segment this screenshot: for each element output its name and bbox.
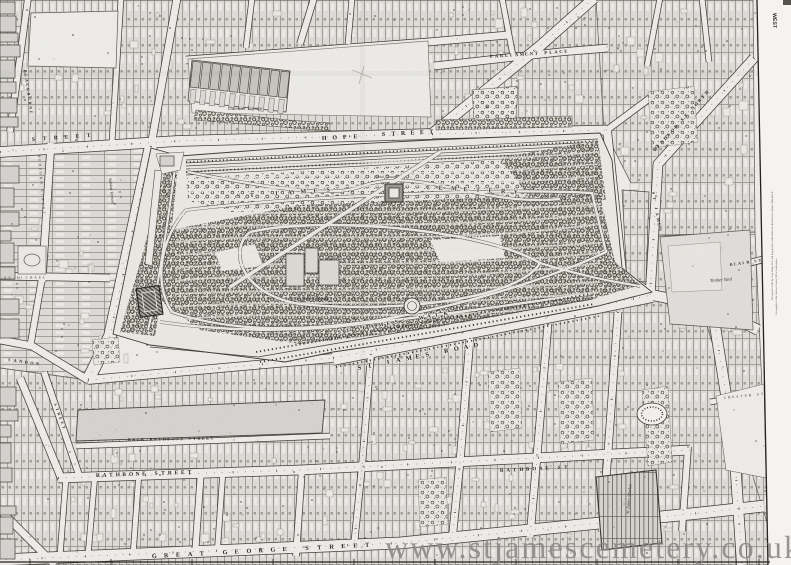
svg-text:WEST: WEST	[771, 13, 777, 29]
svg-text:Zincographed at the Ordnance S: Zincographed at the Ordnance Survey Offi…	[775, 258, 778, 315]
svg-text:Surveyed in 1847 by Capt. Bayl: Surveyed in 1847 by Capt. Bayly R.E. and…	[771, 191, 774, 300]
svg-text:www.stjamescemetery.co.uk: www.stjamescemetery.co.uk	[385, 529, 791, 565]
